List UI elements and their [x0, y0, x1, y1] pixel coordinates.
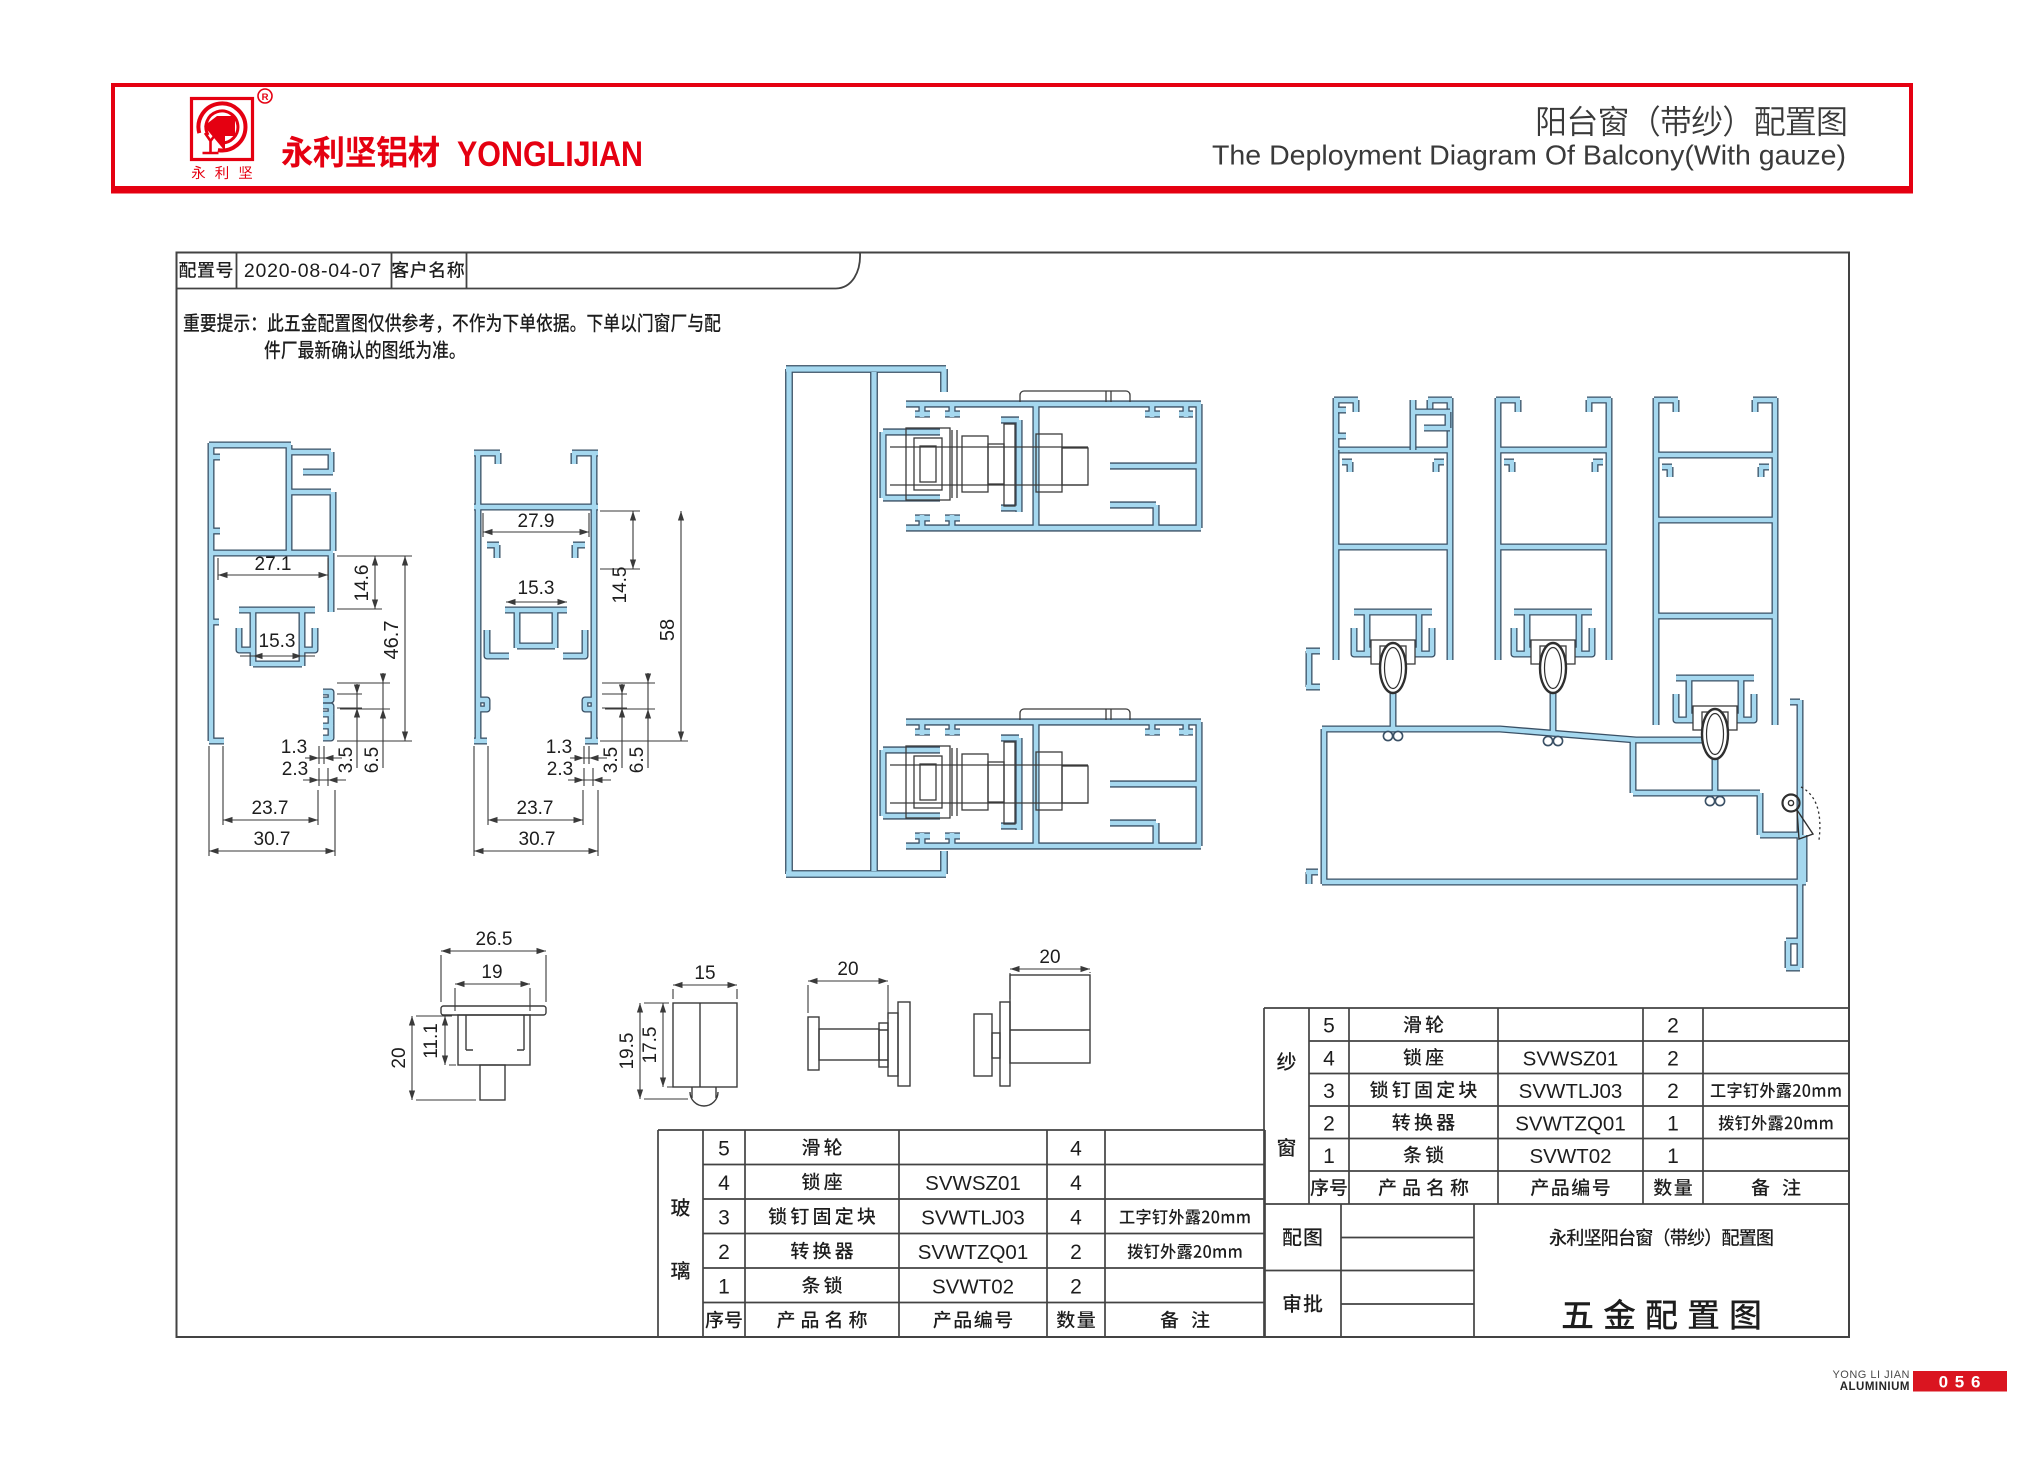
svg-text:1: 1: [1667, 1112, 1679, 1135]
svg-text:2.3: 2.3: [547, 759, 573, 780]
svg-text:0 5 6: 0 5 6: [1939, 1373, 1982, 1392]
svg-text:20: 20: [389, 1047, 410, 1068]
svg-text:SVWT02: SVWT02: [1529, 1145, 1611, 1168]
svg-text:3: 3: [718, 1206, 730, 1229]
svg-text:1.3: 1.3: [546, 737, 572, 758]
svg-text:SVWSZ01: SVWSZ01: [1523, 1047, 1619, 1070]
svg-text:30.7: 30.7: [254, 829, 291, 850]
svg-text:15: 15: [694, 963, 715, 984]
svg-text:2: 2: [718, 1241, 730, 1264]
svg-text:2: 2: [1667, 1047, 1679, 1070]
svg-text:20: 20: [837, 959, 858, 980]
svg-text:4: 4: [1070, 1206, 1082, 1229]
svg-text:4: 4: [1323, 1047, 1335, 1070]
svg-text:5: 5: [1323, 1015, 1335, 1038]
svg-text:2: 2: [1667, 1015, 1679, 1038]
svg-text:46.7: 46.7: [381, 621, 403, 660]
svg-text:ALUMINIUM: ALUMINIUM: [1840, 1381, 1910, 1393]
svg-text:5: 5: [718, 1137, 730, 1160]
svg-text:27.9: 27.9: [518, 511, 555, 532]
svg-text:6.5: 6.5: [627, 747, 648, 773]
svg-text:2: 2: [1070, 1241, 1082, 1264]
svg-text:1: 1: [718, 1275, 730, 1298]
svg-text:3.5: 3.5: [336, 747, 357, 773]
svg-text:11.1: 11.1: [421, 1023, 442, 1059]
svg-text:2: 2: [1323, 1112, 1335, 1135]
svg-text:YONG LI JIAN: YONG LI JIAN: [1832, 1369, 1910, 1381]
svg-text:SVWTZQ01: SVWTZQ01: [918, 1241, 1029, 1264]
svg-text:2: 2: [1667, 1080, 1679, 1103]
svg-text:4: 4: [1070, 1137, 1082, 1160]
svg-text:1.3: 1.3: [281, 737, 307, 758]
svg-text:2020-08-04-07: 2020-08-04-07: [244, 260, 382, 282]
svg-text:20: 20: [1039, 947, 1060, 968]
svg-text:4: 4: [1070, 1172, 1082, 1195]
svg-text:14.5: 14.5: [610, 567, 631, 604]
svg-text:6.5: 6.5: [362, 747, 383, 773]
svg-text:1: 1: [1667, 1145, 1679, 1168]
svg-text:23.7: 23.7: [517, 798, 554, 819]
svg-text:SVWTLJ03: SVWTLJ03: [1519, 1080, 1623, 1103]
svg-text:SVWSZ01: SVWSZ01: [925, 1172, 1021, 1195]
svg-text:27.1: 27.1: [255, 554, 292, 575]
svg-text:SVWTZQ01: SVWTZQ01: [1515, 1112, 1626, 1135]
svg-text:4: 4: [718, 1172, 730, 1195]
svg-text:58: 58: [657, 619, 679, 641]
svg-text:17.5: 17.5: [640, 1027, 661, 1064]
svg-text:30.7: 30.7: [519, 829, 556, 850]
svg-text:26.5: 26.5: [476, 929, 513, 950]
svg-text:2: 2: [1070, 1275, 1082, 1298]
svg-text:15.3: 15.3: [259, 631, 296, 652]
svg-text:3: 3: [1323, 1080, 1335, 1103]
svg-text:SVWTLJ03: SVWTLJ03: [921, 1206, 1025, 1229]
svg-text:YONGLIJIAN: YONGLIJIAN: [457, 134, 643, 174]
svg-text:3.5: 3.5: [601, 747, 622, 773]
svg-text:14.6: 14.6: [352, 565, 373, 602]
svg-text:23.7: 23.7: [252, 798, 289, 819]
svg-text:2.3: 2.3: [282, 759, 308, 780]
svg-text:SVWT02: SVWT02: [932, 1275, 1014, 1298]
svg-text:19: 19: [481, 962, 502, 983]
svg-text:19.5: 19.5: [617, 1033, 638, 1070]
svg-text:1: 1: [1323, 1145, 1335, 1168]
svg-text:R: R: [262, 92, 269, 103]
svg-text:15.3: 15.3: [518, 578, 555, 599]
svg-text:The Deployment Diagram Of Balc: The Deployment Diagram Of Balcony(With g…: [1212, 140, 1846, 171]
